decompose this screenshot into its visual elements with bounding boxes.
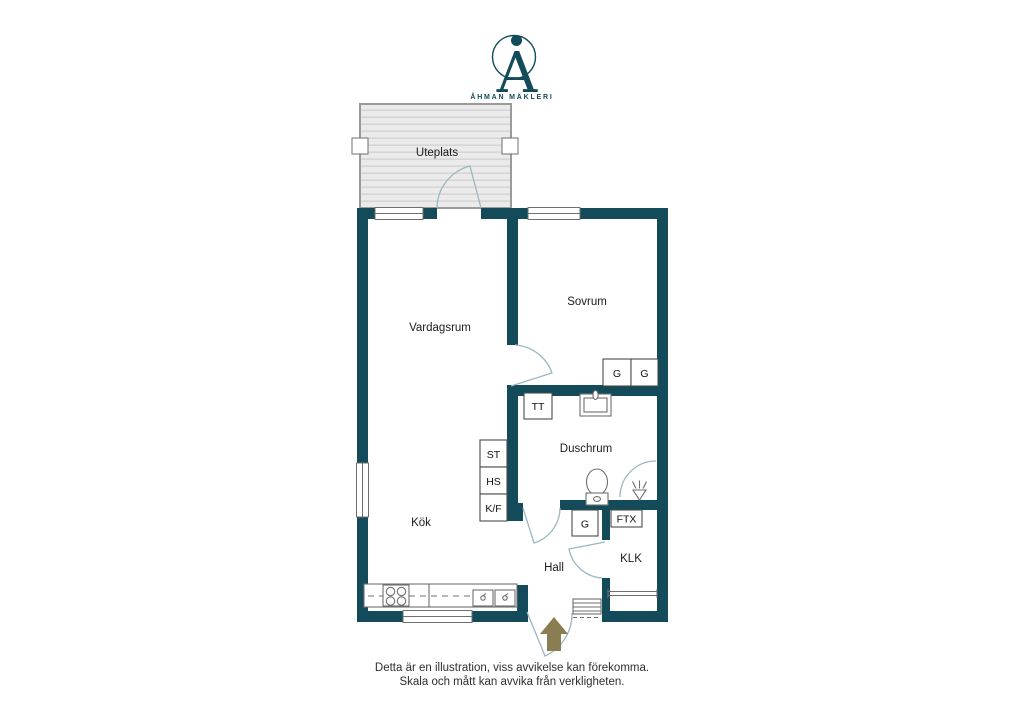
- wall-right: [657, 208, 668, 622]
- window-sovrum-top: [528, 208, 580, 220]
- dryer-tt-label: TT: [532, 401, 545, 413]
- entrance-step-icon: [573, 599, 601, 618]
- wall-left: [357, 208, 368, 622]
- fridge-kf-label: K/F: [485, 503, 501, 515]
- wall-kok-hall-stub: [518, 503, 523, 521]
- wardrobe-hall-label: G: [581, 519, 589, 531]
- label-duschrum: Duschrum: [560, 443, 612, 455]
- kitchen-fixtures: [364, 584, 517, 607]
- washbasin-icon: [580, 391, 611, 417]
- brand-logo: A ÅHMAN MÄKLERI: [470, 35, 553, 106]
- label-klk: KLK: [620, 553, 642, 565]
- label-vardagsrum: Vardagsrum: [409, 322, 471, 334]
- cleaning-st-label: ST: [487, 449, 501, 461]
- patio-post-left: [352, 138, 368, 154]
- floorplan-svg: A ÅHMAN MÄKLERI: [0, 0, 1024, 724]
- label-uteplats: Uteplats: [416, 147, 458, 159]
- wall-bottom-right: [602, 611, 668, 622]
- door-kok-hall: [523, 508, 560, 543]
- klk-rail-icon: [608, 589, 657, 598]
- cabinet-hs-label: HS: [486, 476, 501, 488]
- wall-duschrum-bottom: [560, 500, 668, 510]
- shower-head-icon: [633, 481, 647, 501]
- disclaimer-line-2: Skala och mått kan avvika från verklighe…: [399, 676, 624, 688]
- door-shower: [620, 461, 656, 497]
- floorplan-page: A ÅHMAN MÄKLERI: [0, 0, 1024, 724]
- wardrobe-g1-label: G: [613, 368, 621, 380]
- wall-hall-klk-bottom: [602, 578, 610, 611]
- door-sovrum: [511, 345, 552, 386]
- label-sovrum: Sovrum: [567, 296, 607, 308]
- disclaimer-line-1: Detta är en illustration, viss avvikelse…: [375, 662, 649, 674]
- door-klk: [569, 542, 605, 578]
- window-kok-bottom: [403, 611, 472, 623]
- stove-icon: [383, 585, 409, 606]
- entrance-arrow-icon: [540, 617, 568, 651]
- toilet-icon: [586, 469, 608, 505]
- wardrobe-g2-label: G: [640, 368, 648, 380]
- wall-kok-hall: [507, 396, 518, 521]
- ftx-unit-label: FTX: [617, 514, 637, 526]
- wall-vardagsrum-sovrum: [507, 219, 518, 345]
- wall-hall-klk-top: [602, 510, 610, 540]
- window-kok-left: [357, 463, 369, 517]
- logo-ring-dot-icon: [511, 35, 522, 46]
- patio-post-right: [502, 138, 518, 154]
- window-vardagsrum-top: [375, 208, 423, 220]
- label-hall: Hall: [544, 562, 564, 574]
- brand-name: ÅHMAN MÄKLERI: [470, 92, 553, 101]
- wall-entrance-jamb: [517, 585, 528, 611]
- label-kok: Kök: [411, 517, 431, 529]
- footer-disclaimer: Detta är en illustration, viss avvikelse…: [375, 662, 649, 688]
